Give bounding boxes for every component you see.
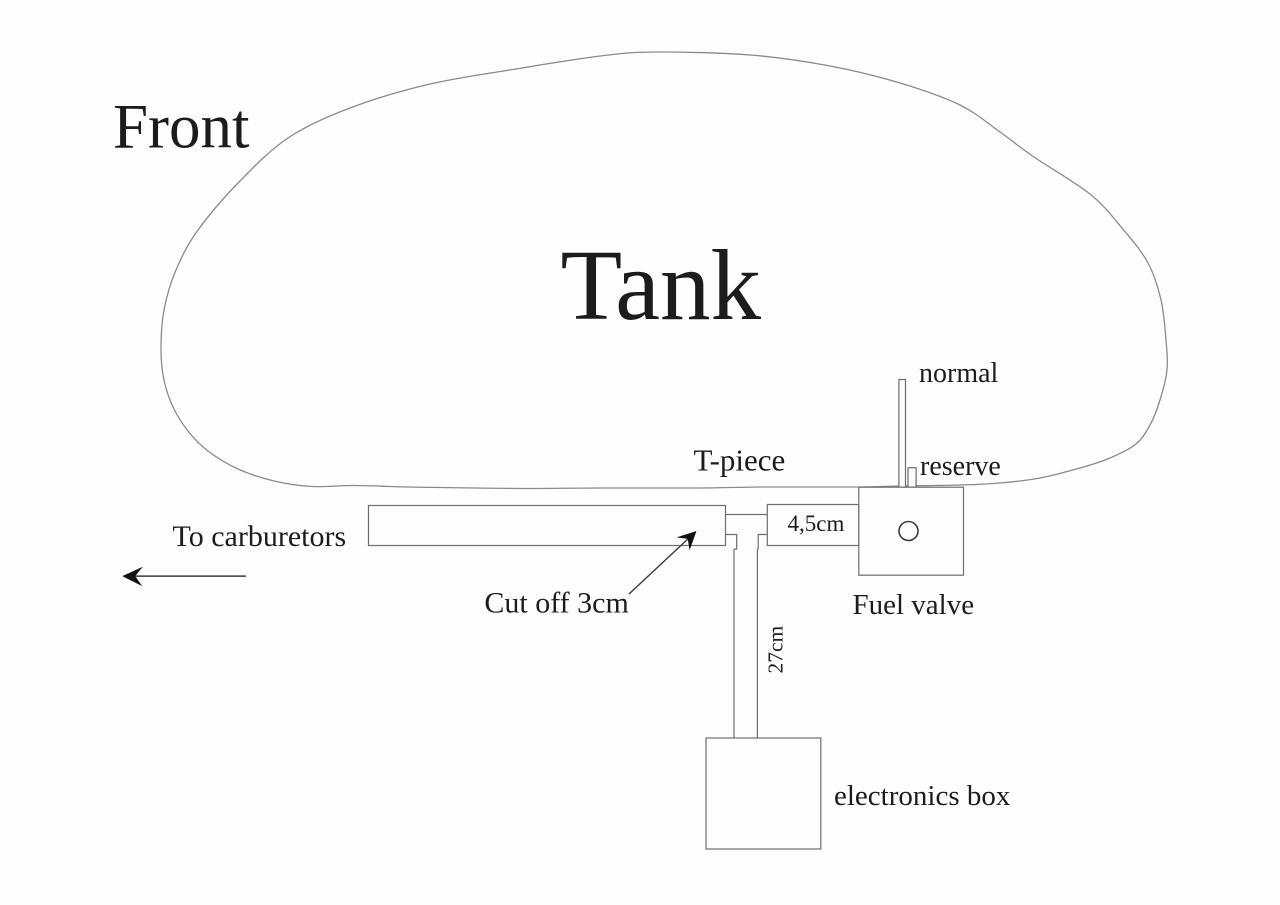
svg-text:Front: Front [113,92,250,162]
svg-text:Fuel valve: Fuel valve [853,589,975,621]
svg-text:T-piece: T-piece [694,443,786,478]
svg-text:reserve: reserve [920,451,1001,482]
svg-text:4,5cm: 4,5cm [788,511,845,536]
svg-text:normal: normal [919,358,999,389]
svg-text:27cm: 27cm [764,625,788,673]
svg-text:Cut off 3cm: Cut off 3cm [484,587,628,620]
svg-text:Tank: Tank [561,229,762,341]
svg-text:electronics box: electronics box [834,780,1011,812]
svg-text:To carburetors: To carburetors [173,520,347,553]
